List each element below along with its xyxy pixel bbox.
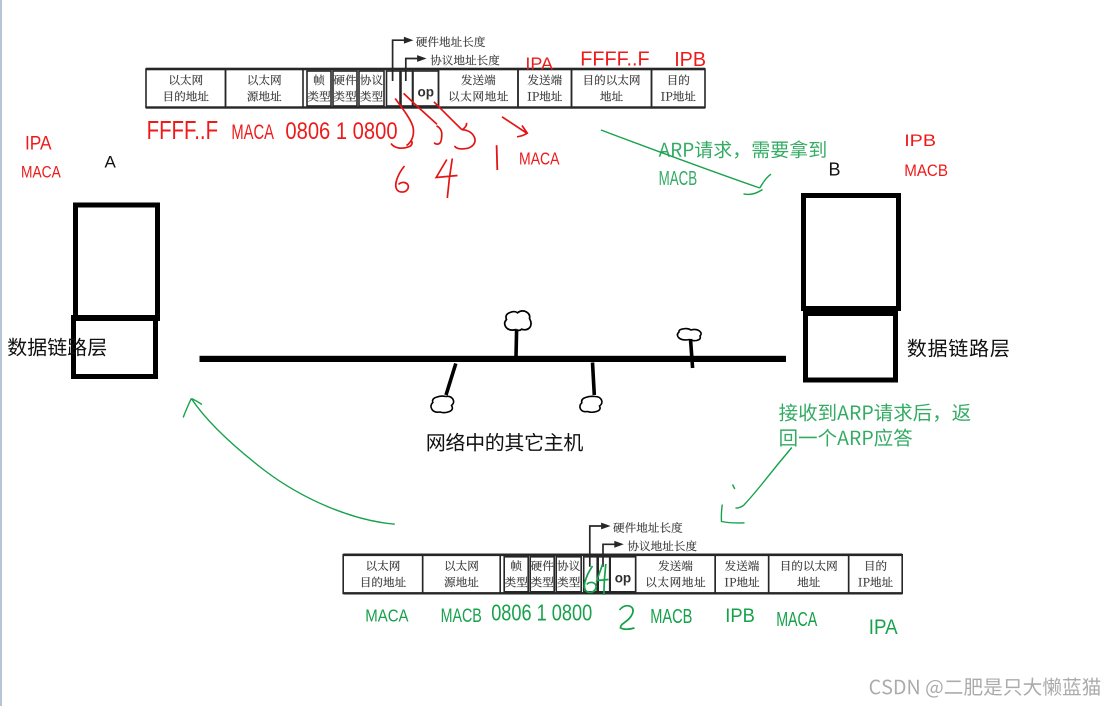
svg-text:A: A [105, 153, 117, 172]
svg-text:FFFF..F: FFFF..F [147, 116, 219, 145]
svg-text:FFFF..F: FFFF..F [580, 49, 649, 71]
svg-text:MACA: MACA [365, 605, 409, 626]
svg-text:IPA: IPA [869, 616, 898, 639]
svg-text:IPB: IPB [674, 49, 706, 71]
svg-text:0806 1 0800: 0806 1 0800 [285, 117, 397, 144]
svg-text:MACA: MACA [21, 163, 61, 182]
svg-text:MACB: MACB [650, 605, 692, 628]
svg-text:IPA: IPA [525, 53, 553, 73]
svg-text:0806 1 0800: 0806 1 0800 [491, 601, 592, 627]
svg-text:IPA: IPA [25, 133, 52, 154]
svg-text:MACA: MACA [231, 119, 274, 144]
svg-text:op: op [615, 570, 632, 585]
svg-text:op: op [418, 85, 435, 100]
svg-text:B: B [829, 160, 841, 180]
svg-text:MACB: MACB [659, 168, 697, 190]
svg-text:MACA: MACA [519, 149, 560, 169]
svg-text:MACB: MACB [441, 605, 482, 626]
svg-text:IPB: IPB [725, 605, 755, 626]
svg-text:MACB: MACB [904, 161, 948, 180]
svg-text:MACA: MACA [776, 608, 817, 631]
svg-text:IPB: IPB [904, 130, 936, 149]
